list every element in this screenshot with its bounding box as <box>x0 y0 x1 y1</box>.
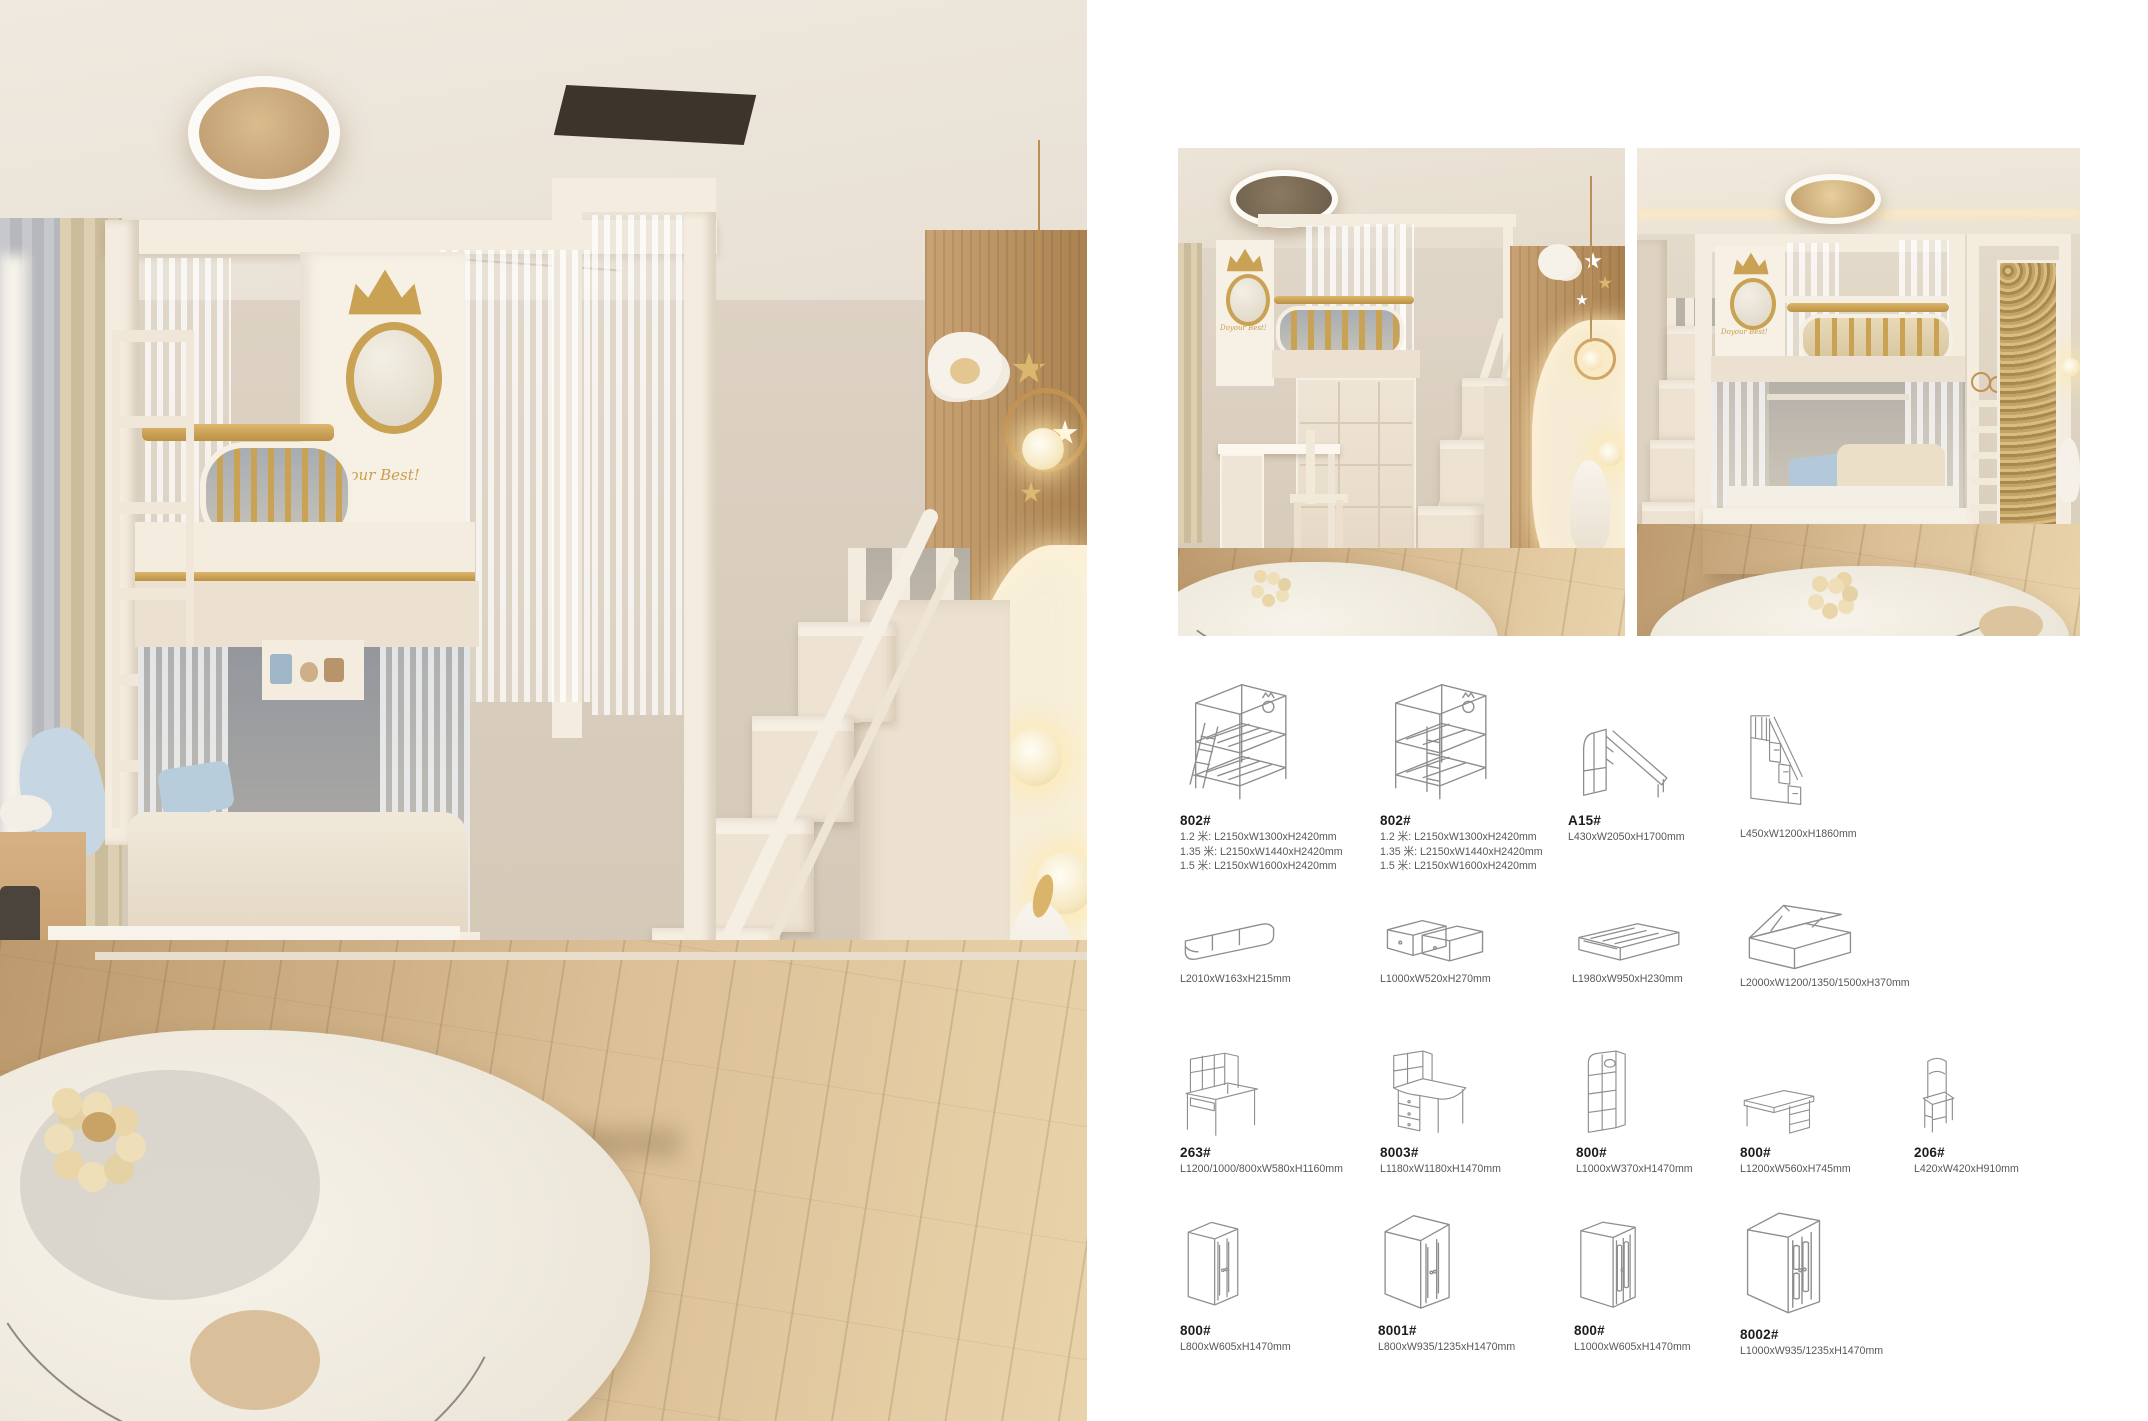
product-code: 802# <box>1380 813 1575 828</box>
letter-block <box>270 654 292 684</box>
drawing-desk-with-side-shelf <box>1740 1046 1935 1140</box>
product-dims: L1200/1000/800xW580xH1160mm <box>1180 1162 1375 1177</box>
drawing-chair <box>1914 1046 2109 1140</box>
drawing-corner-desk <box>1380 1046 1575 1140</box>
mirror <box>346 322 442 434</box>
product-card-drawers: L1000xW520xH270mm <box>1380 898 1575 987</box>
pompom-toy <box>52 1088 82 1118</box>
p2-headboard: Doyour Best! <box>1715 246 1785 358</box>
p2-bed-shadow <box>1703 508 1973 574</box>
pompom-center <box>82 1112 116 1142</box>
product-dims: 1.2 米: L2150xW1300xH2420mm 1.35 米: L2150… <box>1380 830 1575 874</box>
p2-frame-post-2 <box>2059 234 2071 568</box>
p1-pendant-globe <box>1582 350 1602 370</box>
product-card-staircase: L450xW1200xH1860mm <box>1740 670 1935 842</box>
product-card-800-desk: 800# L1200xW560xH745mm <box>1740 1046 1935 1177</box>
product-card-263-desk: 263# L1200/1000/800xW580xH1160mm <box>1180 1046 1375 1177</box>
product-card-a15-slide: A15# L430xW2050xH1700mm <box>1568 670 1763 845</box>
p2-inner-shelf <box>1767 394 1909 400</box>
product-card-8003-corner-desk: 8003# L1180xW1180xH1470mm <box>1380 1046 1575 1177</box>
drawing-two-door-wardrobe <box>1180 1200 1375 1318</box>
p2-bunny-hint <box>2057 438 2080 502</box>
catalog-page: Doyour Best! <box>0 0 2148 1421</box>
drawing-bunk-bed-with-ladder <box>1180 670 1375 808</box>
drawing-desk-with-hutch <box>1180 1046 1375 1140</box>
p2-gold-screen <box>1997 260 2059 538</box>
product-card-trundle: L1980xW950xH230mm <box>1572 898 1767 987</box>
sheep-face <box>950 358 980 384</box>
toy-shelf <box>262 640 364 700</box>
p1-sheep <box>1538 244 1578 280</box>
pendant-globe <box>1022 428 1064 470</box>
p2-ceiling-lamp <box>1785 174 1881 224</box>
heart-toy <box>300 662 318 682</box>
product-dims: L420xW420xH910mm <box>1914 1162 2109 1177</box>
drawing-bed-guard-rail <box>1180 898 1375 970</box>
p1-pendant-wire <box>1590 176 1592 342</box>
p2-ring-1 <box>1971 372 1991 392</box>
p2-mirror <box>1730 278 1776 330</box>
product-code: 800# <box>1180 1323 1375 1338</box>
p1-pompom <box>1254 570 1267 583</box>
p1-mirror <box>1226 274 1270 326</box>
product-code: 8002# <box>1740 1327 1935 1342</box>
p2-mattress <box>1727 486 1957 508</box>
p1-bunny-lamp <box>1570 460 1610 552</box>
gallery-photo-2: Doyour Best! <box>1637 148 2080 636</box>
product-dims: L450xW1200xH1860mm <box>1740 827 1935 842</box>
product-dims: L1000xW935/1235xH1470mm <box>1740 1344 1935 1359</box>
p1-fascia <box>1272 350 1420 378</box>
p1-desk-shelf <box>1220 454 1264 550</box>
skirting <box>95 952 1087 960</box>
product-dims: L2010xW163xH215mm <box>1180 972 1375 987</box>
product-card-802-ladder: 802# 1.2 米: L2150xW1300xH2420mm 1.35 米: … <box>1180 670 1375 874</box>
product-code: 263# <box>1180 1145 1375 1160</box>
p2-slogan: Doyour Best! <box>1721 328 1768 336</box>
product-dims: L800xW605xH1470mm <box>1180 1340 1375 1355</box>
product-dims: L430xW2050xH1700mm <box>1568 830 1763 845</box>
p1-slogan: Doyour Best! <box>1220 324 1267 332</box>
product-card-800-wardrobe2: 800# L800xW605xH1470mm <box>1180 1200 1375 1355</box>
product-dims: L2000xW1200/1350/1500xH370mm <box>1740 976 1935 991</box>
toy <box>324 658 344 682</box>
drawing-lift-up-storage-box <box>1740 898 1935 974</box>
drawing-trundle-bed <box>1572 898 1767 970</box>
drawing-slide-with-cabinet <box>1568 670 1763 808</box>
ceiling-recess <box>554 85 756 145</box>
p1-curtain <box>1178 243 1202 543</box>
p1-chair-back <box>1306 430 1315 504</box>
product-dims: L1180xW1180xH1470mm <box>1380 1162 1575 1177</box>
product-dims: L1200xW560xH745mm <box>1740 1162 1935 1177</box>
crown-icon <box>342 264 428 320</box>
product-card-8002-wardrobe: 8002# L1000xW935/1235xH1470mm <box>1740 1200 1935 1359</box>
p2-gold-trim <box>1787 303 1949 312</box>
product-dims: 1.2 米: L2150xW1300xH2420mm 1.35 米: L2150… <box>1180 830 1375 874</box>
p2-rug-circle <box>1979 606 2043 636</box>
product-dims: L1980xW950xH230mm <box>1572 972 1767 987</box>
product-card-liftbox: L2000xW1200/1350/1500xH370mm <box>1740 898 1935 991</box>
product-card-802-stairs: 802# 1.2 米: L2150xW1300xH2420mm 1.35 米: … <box>1380 670 1575 874</box>
p1-crown-icon <box>1224 246 1266 274</box>
p2-frame-beam <box>1967 234 2071 246</box>
p1-headboard: Doyour Best! <box>1216 240 1274 386</box>
product-dims: L1000xW520xH270mm <box>1380 972 1575 987</box>
p2-shelf-board <box>1785 296 1951 303</box>
product-card-206-chair: 206# L420xW420xH910mm <box>1914 1046 2109 1177</box>
p2-glow-lamp <box>2061 358 2080 377</box>
product-card-8001-wardrobe: 8001# L800xW935/1235xH1470mm <box>1378 1200 1573 1355</box>
p1-balloon-lamp <box>1598 442 1622 466</box>
product-card-rail: L2010xW163xH215mm <box>1180 898 1375 987</box>
p2-crown-icon <box>1729 250 1773 277</box>
p1-gold-trim <box>1274 296 1414 304</box>
p2-pompom <box>1812 576 1828 592</box>
p1-desktop <box>1218 444 1340 454</box>
p1-chair-leg-2 <box>1336 500 1343 550</box>
p2-fascia <box>1711 356 1965 382</box>
product-code: 800# <box>1740 1145 1935 1160</box>
drawing-corner-three-door-wardrobe <box>1740 1200 1935 1322</box>
desk-lamp <box>0 795 52 831</box>
drawing-bunk-bed-with-inner-ladder <box>1380 670 1575 808</box>
product-dims: L800xW935/1235xH1470mm <box>1378 1340 1573 1355</box>
pendant-wire <box>1038 140 1040 396</box>
product-code: 8003# <box>1380 1145 1575 1160</box>
drawing-storage-staircase <box>1740 670 1935 822</box>
product-code: 802# <box>1180 813 1375 828</box>
main-photo: Doyour Best! <box>0 0 1087 1421</box>
gallery-photo-1: Doyour Best! <box>1178 148 1625 636</box>
product-code: 8001# <box>1378 1323 1573 1338</box>
product-code: A15# <box>1568 813 1763 828</box>
ceiling-lamp <box>188 76 340 190</box>
p1-desk-leg <box>1328 454 1335 552</box>
p1-chair-leg-1 <box>1294 502 1301 554</box>
drawing-under-bed-drawers <box>1380 898 1575 970</box>
product-code: 206# <box>1914 1145 2109 1160</box>
drawing-corner-two-door-wardrobe <box>1378 1200 1573 1318</box>
p1-cubbies <box>1300 382 1412 550</box>
